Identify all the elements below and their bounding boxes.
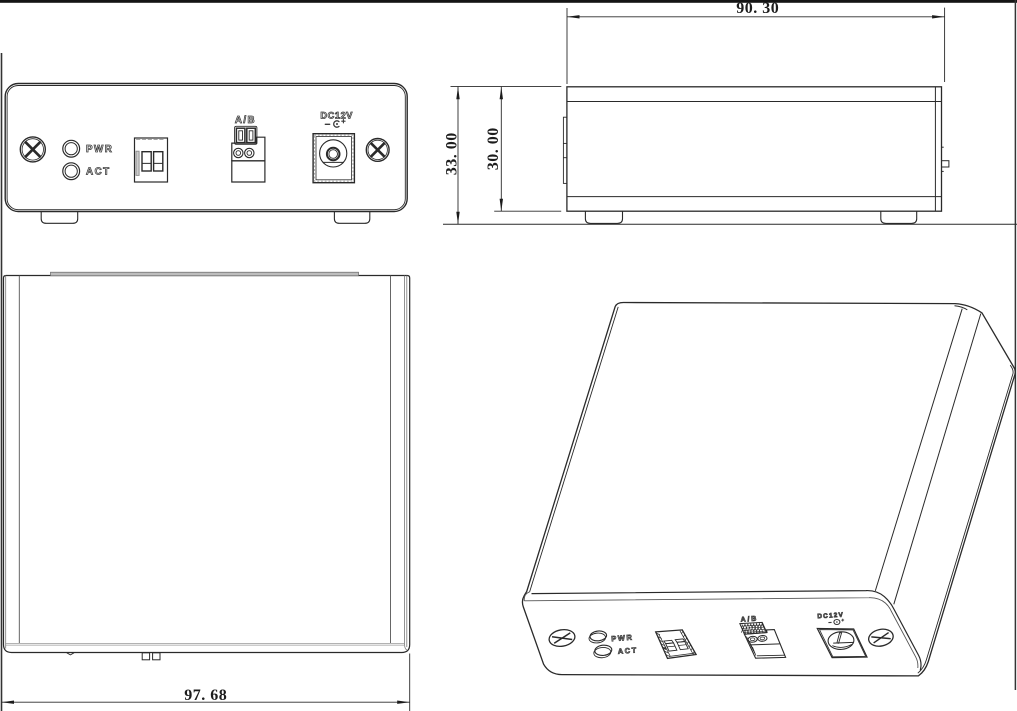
svg-text:PWR: PWR [86, 144, 113, 155]
svg-text:PWR: PWR [611, 633, 634, 644]
svg-text:ACT: ACT [618, 646, 639, 656]
svg-text:97. 68: 97. 68 [184, 687, 227, 704]
svg-text:90. 30: 90. 30 [736, 0, 779, 17]
svg-text:DC12V: DC12V [320, 110, 353, 120]
svg-text:ACT: ACT [86, 167, 111, 178]
svg-text:33. 00: 33. 00 [443, 132, 460, 175]
svg-text:30. 00: 30. 00 [485, 127, 502, 170]
svg-text:A/B: A/B [235, 115, 256, 126]
